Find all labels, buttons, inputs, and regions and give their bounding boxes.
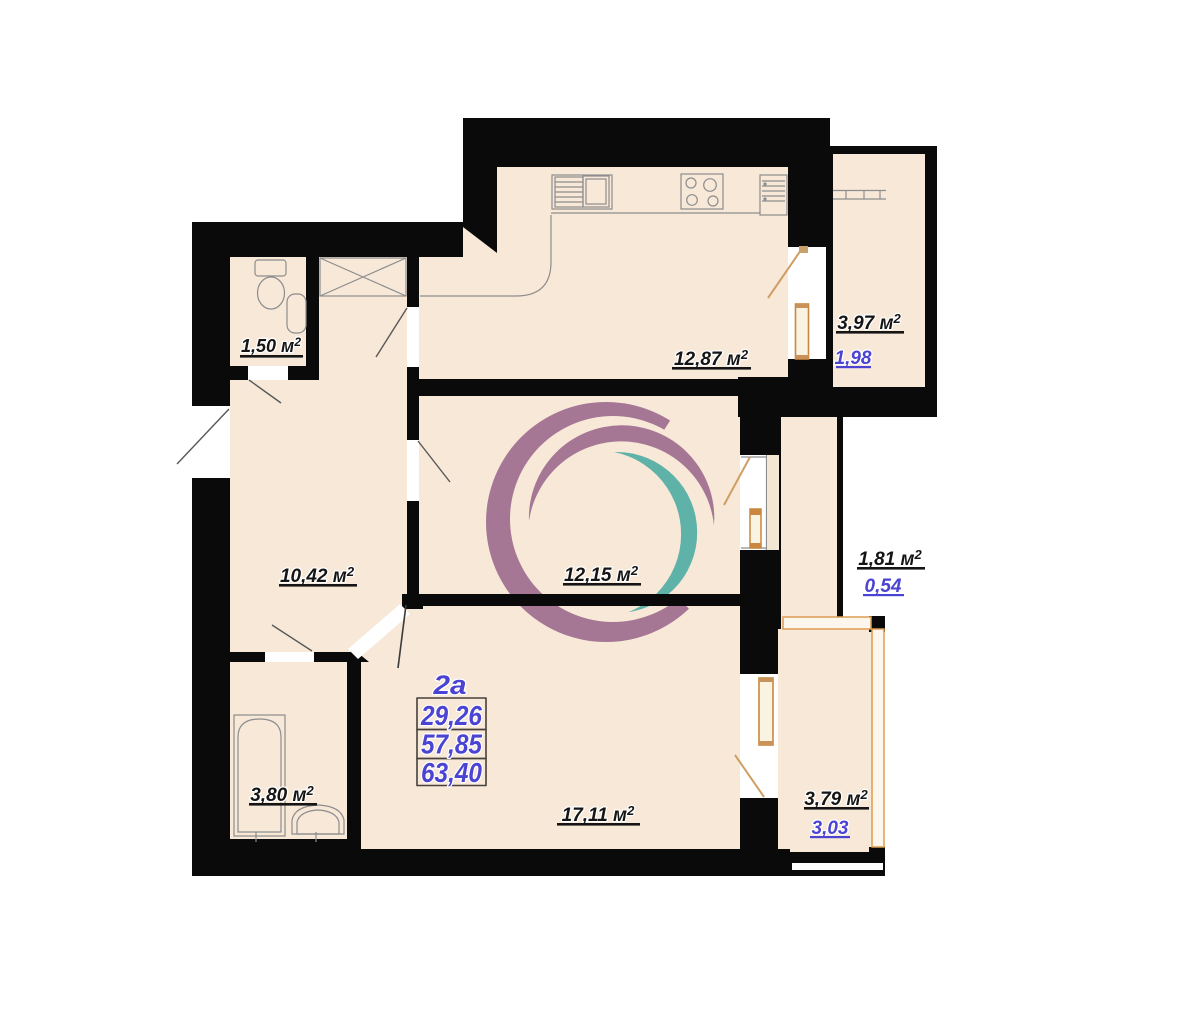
svg-text:10,42 м2: 10,42 м2 <box>280 564 355 587</box>
svg-text:2a: 2a <box>432 670 466 700</box>
svg-text:12,87 м2: 12,87 м2 <box>674 347 749 370</box>
svg-text:3,97 м2: 3,97 м2 <box>837 311 901 334</box>
svg-text:3,80 м2: 3,80 м2 <box>250 783 314 806</box>
svg-text:29,26: 29,26 <box>420 700 482 731</box>
svg-text:1,98: 1,98 <box>835 348 872 369</box>
svg-text:12,15 м2: 12,15 м2 <box>564 563 639 586</box>
svg-text:1,50 м2: 1,50 м2 <box>241 335 301 356</box>
svg-text:1,81 м2: 1,81 м2 <box>858 547 922 570</box>
svg-text:63,40: 63,40 <box>421 757 482 788</box>
svg-text:57,85: 57,85 <box>421 729 482 760</box>
svg-text:3,79 м2: 3,79 м2 <box>804 787 868 810</box>
svg-text:0,54: 0,54 <box>865 576 902 597</box>
svg-text:17,11 м2: 17,11 м2 <box>562 803 635 826</box>
svg-text:3,03: 3,03 <box>812 818 849 839</box>
